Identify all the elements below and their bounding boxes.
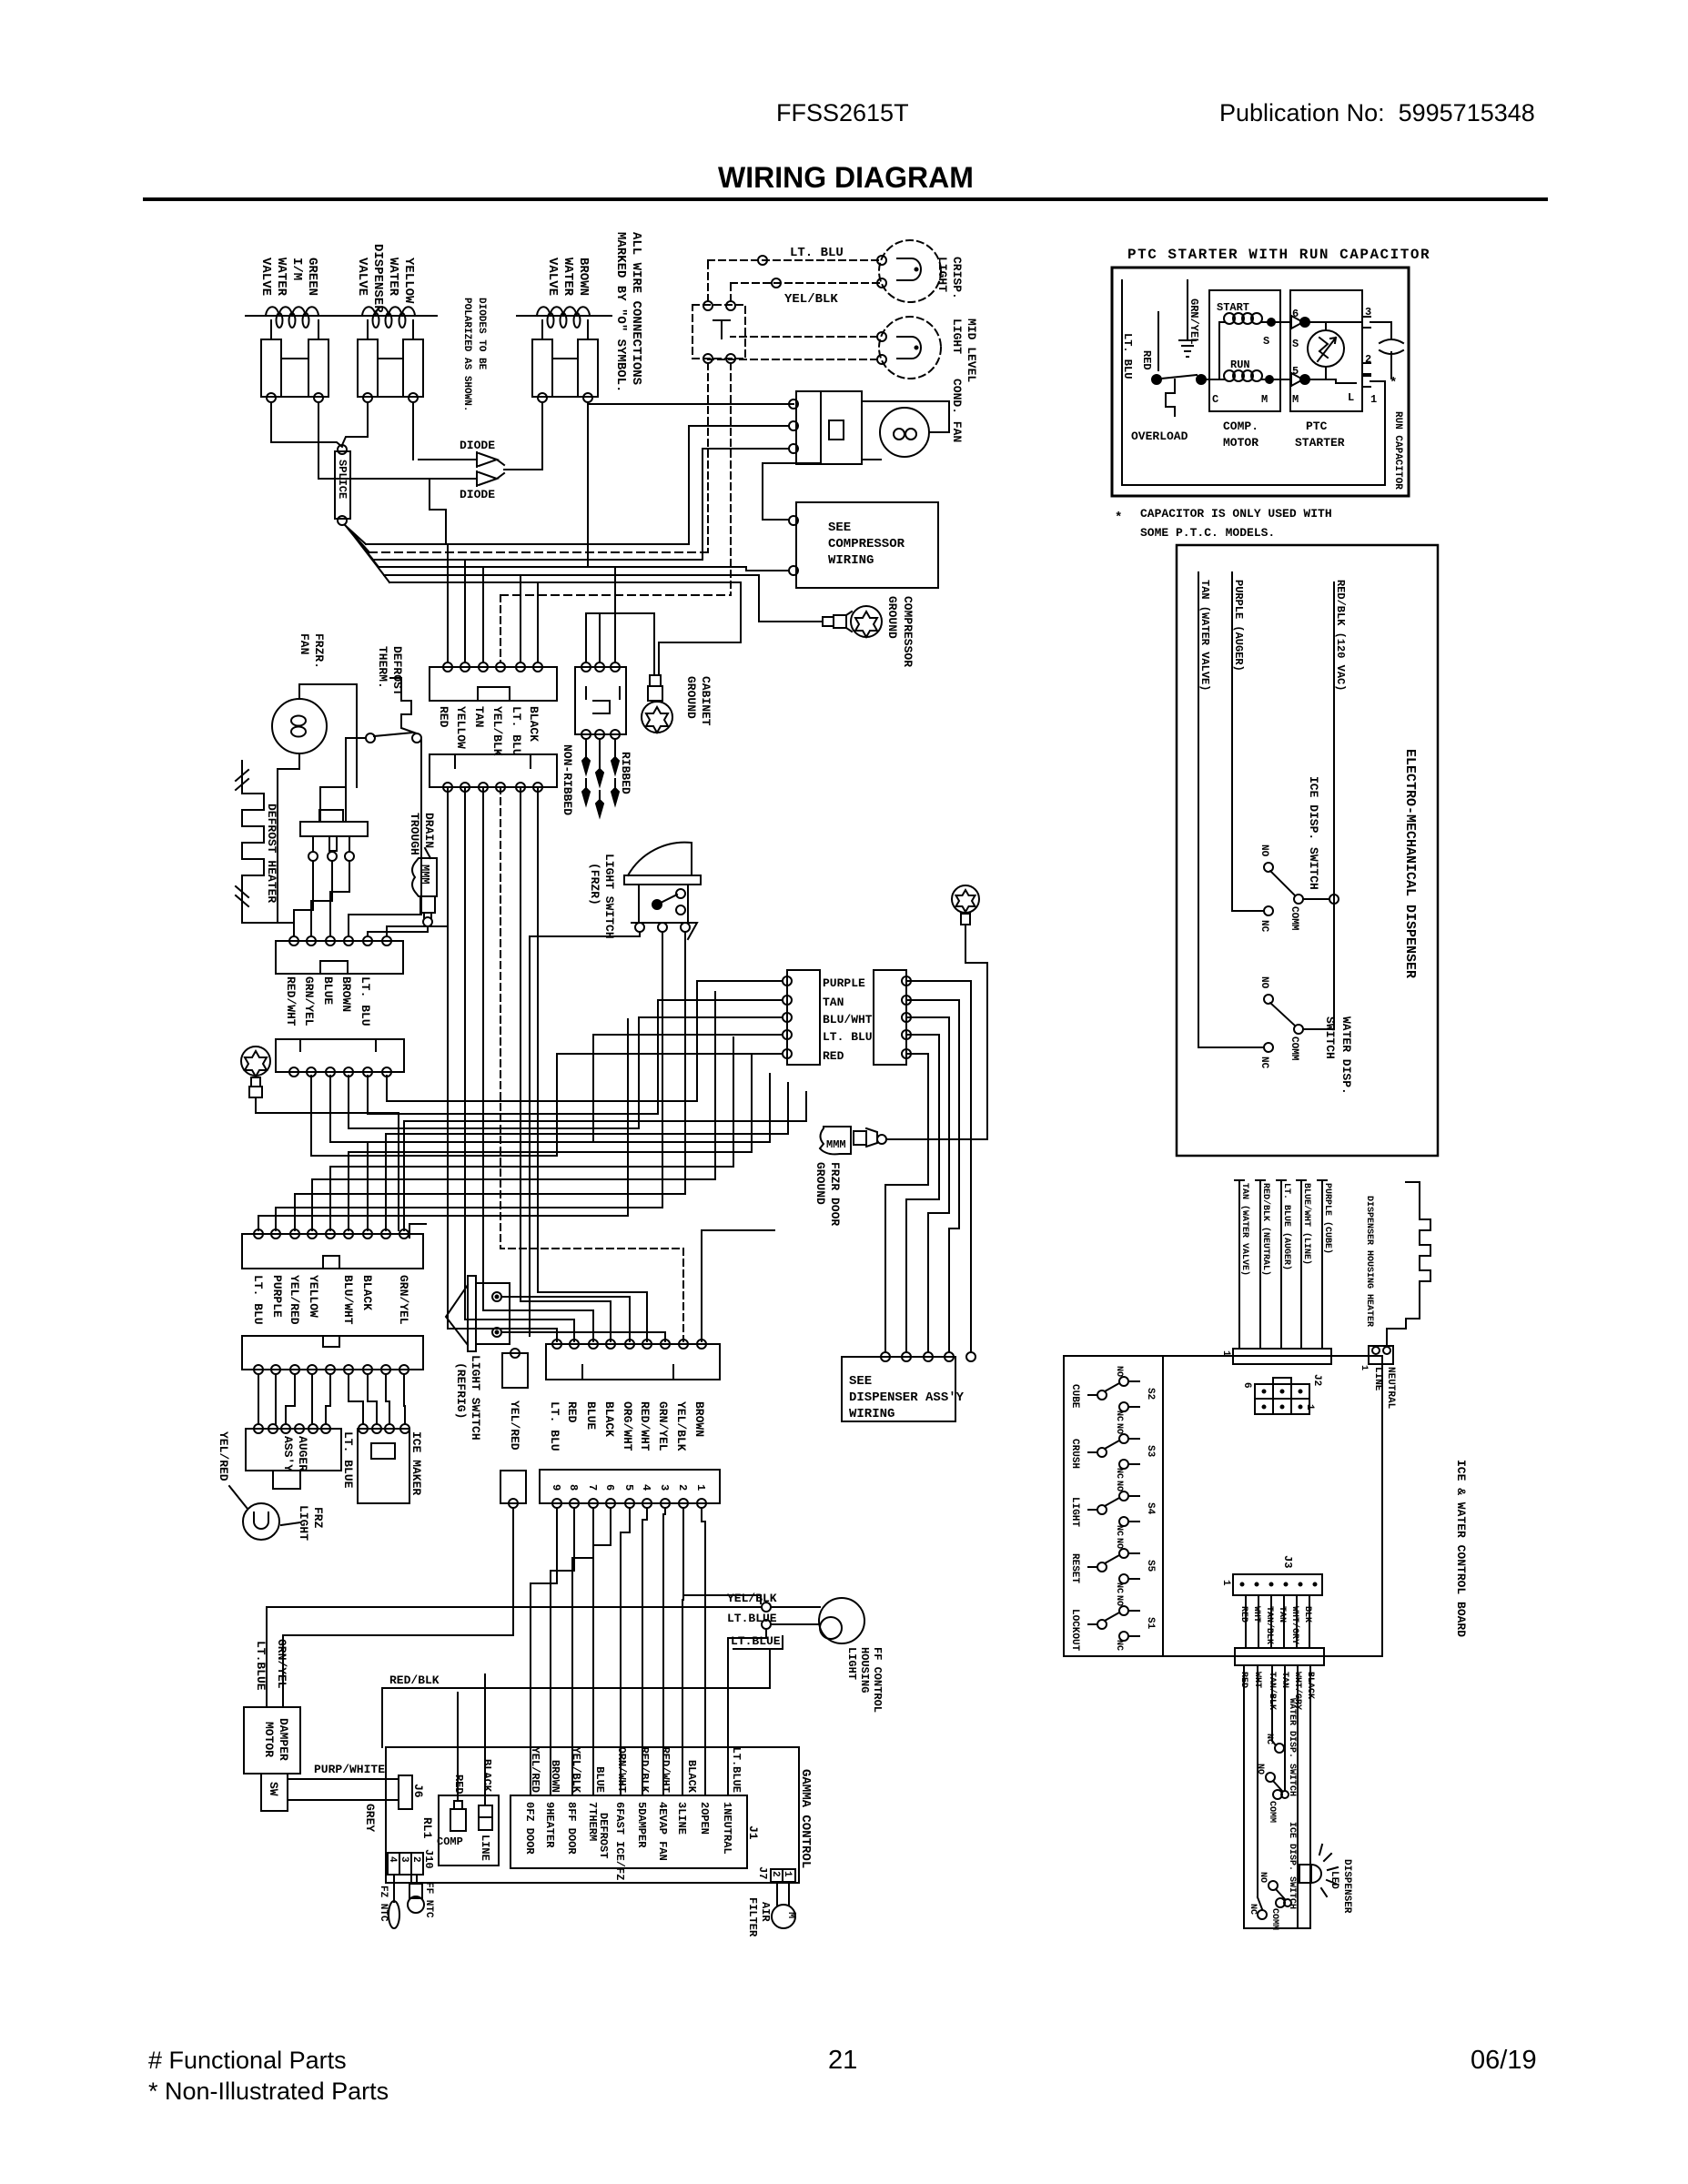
svg-text:WIRING: WIRING xyxy=(828,553,874,568)
svg-text:WHT: WHT xyxy=(1251,1606,1261,1623)
svg-text:BLUE: BLUE xyxy=(584,1401,598,1430)
svg-text:NO: NO xyxy=(1258,976,1269,989)
svg-text:GRN/YEL: GRN/YEL xyxy=(656,1401,670,1451)
svg-text:NO: NO xyxy=(1114,1481,1124,1491)
svg-text:CRUSH: CRUSH xyxy=(1069,1439,1080,1469)
svg-text:LIGHT: LIGHT xyxy=(1069,1497,1080,1527)
svg-text:5: 5 xyxy=(622,1484,635,1491)
svg-text:7THERM: 7THERM xyxy=(586,1802,599,1841)
svg-text:DEFROST: DEFROST xyxy=(597,1813,610,1858)
svg-text:PURPLE: PURPLE xyxy=(270,1275,284,1318)
svg-text:CRISP.: CRISP. xyxy=(950,257,964,299)
svg-text:MMM: MMM xyxy=(419,864,431,885)
svg-text:NEUTRAL: NEUTRAL xyxy=(1385,1367,1396,1410)
svg-text:YELLOW: YELLOW xyxy=(401,258,416,304)
svg-text:MOTOR: MOTOR xyxy=(262,1722,276,1757)
svg-text:FZ NTC: FZ NTC xyxy=(378,1886,389,1922)
svg-text:S: S xyxy=(1263,335,1269,348)
svg-text:RED/WHT: RED/WHT xyxy=(659,1747,672,1793)
svg-text:GRN/YEL: GRN/YEL xyxy=(1188,298,1200,344)
svg-text:AUGER: AUGER xyxy=(296,1436,309,1471)
svg-text:NC: NC xyxy=(1114,1640,1124,1651)
svg-text:WATER: WATER xyxy=(386,258,400,297)
svg-text:RED: RED xyxy=(823,1049,844,1063)
svg-text:2OPEN: 2OPEN xyxy=(698,1802,711,1835)
svg-text:2: 2 xyxy=(410,1856,421,1863)
svg-text:M: M xyxy=(1292,393,1299,406)
svg-text:COND. FAN: COND. FAN xyxy=(950,379,964,442)
svg-text:GRN/YEL: GRN/YEL xyxy=(397,1275,410,1325)
svg-text:I/M: I/M xyxy=(289,258,304,280)
svg-text:NC: NC xyxy=(1114,1410,1124,1421)
svg-text:S3: S3 xyxy=(1145,1445,1156,1458)
svg-text:LT. BLU: LT. BLU xyxy=(790,246,844,260)
svg-text:LT. BLU: LT. BLU xyxy=(251,1275,265,1325)
svg-text:LT.BLUE: LT.BLUE xyxy=(727,1612,777,1625)
svg-text:RESET: RESET xyxy=(1069,1553,1080,1583)
svg-text:VALVE: VALVE xyxy=(258,258,273,296)
svg-text:LT. BLUE (AUGER): LT. BLUE (AUGER) xyxy=(1281,1183,1292,1270)
svg-text:LT. BLU: LT. BLU xyxy=(1121,333,1134,379)
svg-text:FRZR.: FRZR. xyxy=(312,633,326,669)
svg-text:BLU/WHT: BLU/WHT xyxy=(341,1275,355,1325)
svg-text:S5: S5 xyxy=(1145,1560,1156,1572)
svg-text:2: 2 xyxy=(770,1871,781,1877)
svg-text:DISPENSER ASS'Y: DISPENSER ASS'Y xyxy=(849,1390,965,1405)
svg-text:GRN/YEL: GRN/YEL xyxy=(275,1639,288,1689)
svg-text:J2: J2 xyxy=(1311,1374,1322,1386)
svg-text:4: 4 xyxy=(387,1856,398,1863)
svg-text:WATER DISP.: WATER DISP. xyxy=(1339,1016,1353,1095)
svg-text:NON-RIBBED: NON-RIBBED xyxy=(561,744,574,815)
svg-text:ICE DISP. SWITCH: ICE DISP. SWITCH xyxy=(1307,776,1320,890)
svg-text:1: 1 xyxy=(694,1484,707,1491)
svg-text:1: 1 xyxy=(1359,1365,1369,1370)
svg-text:PURPLE (AUGER): PURPLE (AUGER) xyxy=(1232,580,1245,672)
svg-text:ASS'Y: ASS'Y xyxy=(281,1436,295,1471)
svg-text:BROWN: BROWN xyxy=(692,1401,706,1437)
svg-text:FF CONTROL: FF CONTROL xyxy=(871,1647,884,1713)
svg-text:ALL WIRE CONNECTIONS: ALL WIRE CONNECTIONS xyxy=(629,232,643,385)
svg-text:4EVAP FAN: 4EVAP FAN xyxy=(656,1802,669,1861)
svg-text:RED/BLK: RED/BLK xyxy=(389,1673,440,1687)
svg-text:THERM.: THERM. xyxy=(376,646,389,689)
svg-text:DISPENSER: DISPENSER xyxy=(370,244,385,313)
svg-text:WHT/GRY: WHT/GRY xyxy=(1289,1606,1300,1644)
svg-text:WIRING: WIRING xyxy=(849,1407,895,1421)
svg-text:C: C xyxy=(1212,393,1218,406)
svg-text:(FRZR): (FRZR) xyxy=(588,863,601,905)
svg-text:6: 6 xyxy=(1241,1382,1252,1389)
svg-text:POLARIZED AS SHOWN.: POLARIZED AS SHOWN. xyxy=(461,298,472,411)
svg-text:3: 3 xyxy=(399,1856,409,1863)
svg-text:RL1: RL1 xyxy=(420,1817,434,1839)
svg-text:TAN: TAN xyxy=(1277,1606,1287,1623)
svg-text:TAN: TAN xyxy=(823,996,844,1009)
svg-text:LT.BLUE: LT.BLUE xyxy=(254,1641,268,1691)
svg-text:GREEN: GREEN xyxy=(305,258,319,296)
svg-text:FILTER: FILTER xyxy=(746,1897,759,1937)
svg-text:RED/BLK: RED/BLK xyxy=(638,1747,651,1794)
svg-text:NO: NO xyxy=(1114,1423,1124,1434)
svg-text:(REFRIG): (REFRIG) xyxy=(454,1362,468,1419)
svg-text:MARKED BY "O" SYMBOL.: MARKED BY "O" SYMBOL. xyxy=(613,232,628,392)
svg-text:J1: J1 xyxy=(746,1825,760,1840)
svg-text:M: M xyxy=(785,1912,798,1918)
svg-text:J10: J10 xyxy=(422,1849,435,1869)
svg-text:FF NTC: FF NTC xyxy=(423,1882,434,1918)
svg-text:Publication No: 5995715348: Publication No: 5995715348 xyxy=(1219,99,1535,126)
svg-text:6FAST ICE/FZ: 6FAST ICE/FZ xyxy=(613,1802,626,1880)
svg-text:# Functional Parts: # Functional Parts xyxy=(148,2047,347,2074)
svg-text:NC: NC xyxy=(1258,920,1269,933)
svg-text:YEL/BLK: YEL/BLK xyxy=(727,1592,777,1605)
svg-text:9: 9 xyxy=(550,1484,562,1491)
svg-text:RED: RED xyxy=(437,706,450,728)
svg-text:NO: NO xyxy=(1114,1595,1124,1606)
svg-text:ICE MAKER: ICE MAKER xyxy=(409,1431,423,1495)
svg-text:LT. BLU: LT. BLU xyxy=(548,1401,561,1451)
svg-text:0FZ DOOR: 0FZ DOOR xyxy=(523,1802,536,1855)
svg-text:WATER: WATER xyxy=(274,258,288,297)
svg-text:S: S xyxy=(1292,338,1299,350)
svg-text:LED: LED xyxy=(1329,1871,1339,1889)
svg-text:S4: S4 xyxy=(1145,1502,1156,1515)
svg-text:YEL/RED: YEL/RED xyxy=(508,1400,521,1451)
svg-text:9HEATER: 9HEATER xyxy=(543,1802,556,1848)
svg-text:LT.BLUE: LT.BLUE xyxy=(730,1747,743,1793)
svg-text:1NEUTRAL: 1NEUTRAL xyxy=(721,1802,733,1855)
svg-text:NC: NC xyxy=(1248,1904,1258,1915)
svg-text:TAN/BLK: TAN/BLK xyxy=(1264,1606,1275,1644)
svg-text:TAN (WATER VALVE): TAN (WATER VALVE) xyxy=(1198,580,1211,691)
svg-text:8FF DOOR: 8FF DOOR xyxy=(565,1802,578,1855)
svg-text:CAPACITOR IS ONLY USED WITH: CAPACITOR IS ONLY USED WITH xyxy=(1140,507,1332,521)
svg-text:NO: NO xyxy=(1258,1872,1268,1883)
svg-text:BROWN: BROWN xyxy=(339,976,353,1012)
svg-text:8: 8 xyxy=(567,1484,580,1491)
svg-text:LT. BLUE: LT. BLUE xyxy=(341,1431,355,1489)
svg-text:COMP.: COMP. xyxy=(1223,420,1258,433)
svg-text:SWITCH: SWITCH xyxy=(1323,1016,1337,1059)
svg-text:RED: RED xyxy=(565,1401,579,1423)
svg-text:PTC: PTC xyxy=(1306,420,1328,433)
svg-text:CABINET: CABINET xyxy=(699,676,713,726)
svg-text:MMM: MMM xyxy=(826,1138,846,1151)
svg-text:HOUSING: HOUSING xyxy=(858,1647,871,1693)
svg-text:NO: NO xyxy=(1258,844,1269,857)
svg-text:WIRING DIAGRAM: WIRING DIAGRAM xyxy=(718,161,974,194)
svg-text:WHT: WHT xyxy=(1252,1672,1262,1688)
svg-text:TAN (WATER VALVE): TAN (WATER VALVE) xyxy=(1239,1183,1250,1276)
svg-text:S2: S2 xyxy=(1145,1388,1156,1400)
svg-text:NC: NC xyxy=(1114,1468,1124,1479)
svg-text:RED: RED xyxy=(1238,1672,1248,1688)
svg-text:LINE: LINE xyxy=(479,1835,491,1861)
svg-text:DRAIN: DRAIN xyxy=(422,813,436,848)
svg-text:AIR: AIR xyxy=(759,1902,772,1922)
svg-text:WATER: WATER xyxy=(561,258,575,297)
svg-text:2: 2 xyxy=(676,1484,689,1491)
svg-text:SEE: SEE xyxy=(828,521,851,535)
svg-text:GAMMA CONTROL: GAMMA CONTROL xyxy=(798,1769,813,1868)
svg-text:06/19: 06/19 xyxy=(1471,2046,1537,2075)
svg-text:LIGHT: LIGHT xyxy=(935,257,949,292)
svg-text:* Non-Illustrated Parts: * Non-Illustrated Parts xyxy=(148,2078,389,2105)
svg-text:YEL/RED: YEL/RED xyxy=(217,1431,230,1481)
svg-text:COMM: COMM xyxy=(1269,1908,1279,1930)
svg-text:RED: RED xyxy=(1140,350,1153,370)
svg-text:COMPRESSOR: COMPRESSOR xyxy=(901,596,915,667)
svg-text:*: * xyxy=(1115,511,1122,525)
svg-text:FRZR DOOR: FRZR DOOR xyxy=(828,1162,842,1226)
svg-text:ELECTRO-MECHANICAL DISPENSER: ELECTRO-MECHANICAL DISPENSER xyxy=(1402,749,1418,978)
svg-text:GRN/YEL: GRN/YEL xyxy=(302,976,316,1026)
svg-text:BLACK: BLACK xyxy=(480,1759,493,1793)
svg-text:GREY: GREY xyxy=(363,1804,377,1832)
svg-text:4: 4 xyxy=(640,1484,652,1491)
svg-text:OVERLOAD: OVERLOAD xyxy=(1131,430,1188,443)
svg-text:WATER DISP. SWITCH: WATER DISP. SWITCH xyxy=(1287,1698,1297,1796)
svg-text:LT.BLUE: LT.BLUE xyxy=(731,1634,781,1648)
svg-text:MID LEVEL: MID LEVEL xyxy=(965,318,978,382)
svg-text:TAN: TAN xyxy=(472,706,486,727)
svg-text:RUN CAPACITOR: RUN CAPACITOR xyxy=(1392,411,1403,490)
svg-text:LT. BLU: LT. BLU xyxy=(510,706,523,756)
svg-text:J7: J7 xyxy=(756,1866,769,1879)
svg-text:YEL/BLK: YEL/BLK xyxy=(674,1401,688,1451)
svg-text:CUBE: CUBE xyxy=(1069,1384,1080,1409)
svg-text:ICE DISP. SWITCH: ICE DISP. SWITCH xyxy=(1287,1822,1297,1909)
svg-text:NO: NO xyxy=(1255,1764,1265,1774)
svg-text:FRZ: FRZ xyxy=(311,1507,325,1529)
svg-text:BLACK: BLACK xyxy=(602,1401,616,1437)
svg-text:YEL/BLK: YEL/BLK xyxy=(490,706,504,756)
svg-text:DEFROST HEATER: DEFROST HEATER xyxy=(265,804,278,903)
svg-text:LIGHT SWITCH: LIGHT SWITCH xyxy=(469,1355,482,1441)
svg-text:VALVE: VALVE xyxy=(355,258,369,296)
svg-text:SOME P.T.C. MODELS.: SOME P.T.C. MODELS. xyxy=(1140,526,1275,540)
svg-text:LIGHT: LIGHT xyxy=(845,1647,858,1680)
svg-text:BLACK: BLACK xyxy=(685,1760,698,1794)
svg-text:YELLOW: YELLOW xyxy=(454,706,468,749)
svg-text:3: 3 xyxy=(658,1484,671,1491)
svg-text:DIODE: DIODE xyxy=(460,439,495,452)
svg-text:MOTOR: MOTOR xyxy=(1223,436,1258,450)
svg-text:RED: RED xyxy=(1238,1606,1248,1623)
svg-text:DISPENSER HOUSING HEATER: DISPENSER HOUSING HEATER xyxy=(1364,1196,1374,1327)
svg-text:1: 1 xyxy=(782,1871,793,1877)
svg-text:COMP: COMP xyxy=(437,1835,463,1848)
svg-text:BLK: BLK xyxy=(1302,1606,1312,1623)
svg-text:S1: S1 xyxy=(1145,1617,1156,1630)
svg-text:TROUGH: TROUGH xyxy=(408,813,421,855)
svg-text:PURPLE: PURPLE xyxy=(823,976,865,990)
svg-text:YELLOW: YELLOW xyxy=(307,1275,320,1318)
svg-text:RED/BLK (120 VAC): RED/BLK (120 VAC) xyxy=(1334,580,1347,691)
svg-text:ICE & WATER CONTROL BOARD: ICE & WATER CONTROL BOARD xyxy=(1454,1460,1468,1637)
svg-text:FFSS2615T: FFSS2615T xyxy=(776,99,909,126)
svg-text:PURPLE (CUBE): PURPLE (CUBE) xyxy=(1322,1183,1333,1254)
svg-text:J3: J3 xyxy=(1281,1555,1294,1568)
svg-text:ORG/WHT: ORG/WHT xyxy=(621,1401,634,1451)
svg-text:7: 7 xyxy=(586,1484,599,1491)
svg-text:YEL/RED: YEL/RED xyxy=(288,1275,301,1325)
svg-text:STARTER: STARTER xyxy=(1295,436,1345,450)
svg-text:TAN/BLK: TAN/BLK xyxy=(1267,1672,1278,1710)
svg-text:LIGHT: LIGHT xyxy=(950,318,964,354)
svg-text:RED/WHT: RED/WHT xyxy=(284,976,298,1026)
svg-text:1: 1 xyxy=(1304,1404,1315,1410)
svg-text:GROUND: GROUND xyxy=(885,596,899,639)
svg-text:PTC STARTER WITH RUN CAPACITOR: PTC STARTER WITH RUN CAPACITOR xyxy=(1127,247,1430,263)
svg-text:GROUND: GROUND xyxy=(814,1162,827,1205)
svg-text:BLACK: BLACK xyxy=(1305,1672,1315,1699)
svg-text:BLUE/WHT (LINE): BLUE/WHT (LINE) xyxy=(1301,1183,1312,1265)
svg-text:BLUE: BLUE xyxy=(321,976,335,1005)
svg-text:DIODES TO BE: DIODES TO BE xyxy=(476,298,487,370)
svg-text:21: 21 xyxy=(828,2046,857,2075)
svg-text:M: M xyxy=(1261,393,1268,406)
svg-text:RED/WHT: RED/WHT xyxy=(638,1401,652,1451)
svg-text:NC: NC xyxy=(1114,1582,1124,1593)
svg-text:COMM: COMM xyxy=(1289,1036,1299,1061)
svg-text:SW: SW xyxy=(267,1782,280,1796)
svg-text:L: L xyxy=(1348,391,1354,404)
svg-text:PURP/WHITE: PURP/WHITE xyxy=(314,1763,385,1776)
svg-text:1: 1 xyxy=(1370,393,1377,406)
svg-text:NO: NO xyxy=(1114,1538,1124,1549)
svg-text:NC: NC xyxy=(1258,1057,1269,1069)
svg-text:3LINE: 3LINE xyxy=(675,1802,688,1835)
svg-text:BLU/WHT: BLU/WHT xyxy=(823,1013,873,1026)
svg-text:J6: J6 xyxy=(411,1784,425,1798)
svg-text:YEL/BLK: YEL/BLK xyxy=(784,292,838,307)
svg-text:*: * xyxy=(1390,376,1397,390)
svg-text:NO: NO xyxy=(1114,1366,1124,1377)
svg-text:VALVE: VALVE xyxy=(545,258,560,296)
svg-text:LT. BLU: LT. BLU xyxy=(823,1030,873,1044)
svg-text:BROWN: BROWN xyxy=(576,258,591,296)
svg-text:GROUND: GROUND xyxy=(684,676,698,719)
svg-text:LOCKOUT: LOCKOUT xyxy=(1069,1609,1080,1652)
svg-text:6: 6 xyxy=(603,1484,616,1491)
svg-text:1: 1 xyxy=(1220,1580,1231,1586)
svg-text:COMM: COMM xyxy=(1289,906,1299,931)
svg-text:FAN: FAN xyxy=(298,633,311,654)
svg-text:BLACK: BLACK xyxy=(360,1275,374,1310)
svg-text:LT. BLU: LT. BLU xyxy=(359,976,372,1026)
svg-text:COMM: COMM xyxy=(1267,1801,1277,1823)
svg-text:SEE: SEE xyxy=(849,1374,872,1389)
svg-text:RIBBED: RIBBED xyxy=(619,752,632,794)
svg-text:NC: NC xyxy=(1114,1525,1124,1536)
svg-text:DISPENSER: DISPENSER xyxy=(1341,1859,1352,1914)
svg-text:BLUE: BLUE xyxy=(593,1766,606,1793)
svg-text:LIGHT SWITCH: LIGHT SWITCH xyxy=(602,854,616,939)
svg-text:COMPRESSOR: COMPRESSOR xyxy=(828,537,905,551)
svg-text:RUN: RUN xyxy=(1230,359,1250,371)
svg-text:TAN: TAN xyxy=(1279,1672,1289,1688)
svg-text:START: START xyxy=(1217,301,1249,314)
svg-text:NC: NC xyxy=(1264,1734,1274,1744)
svg-text:RED/BLK (NEUTRAL): RED/BLK (NEUTRAL) xyxy=(1260,1183,1271,1276)
svg-text:DAMPER: DAMPER xyxy=(277,1718,290,1761)
svg-text:DIODE: DIODE xyxy=(460,488,495,501)
svg-text:5DAMPER: 5DAMPER xyxy=(635,1802,648,1848)
svg-text:BLACK: BLACK xyxy=(527,706,541,742)
